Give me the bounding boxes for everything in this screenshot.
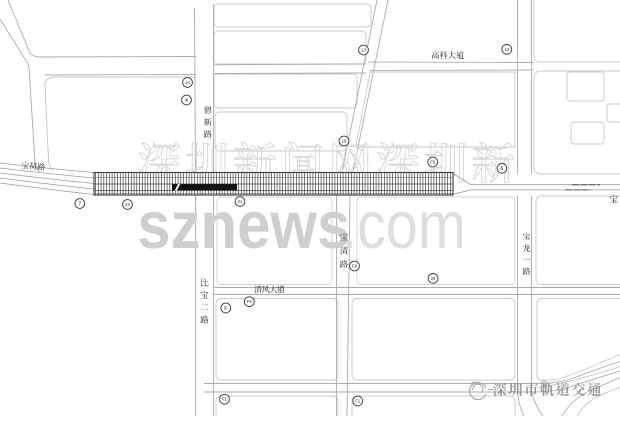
svg-text:6: 6 (501, 166, 504, 172)
svg-text:F1: F1 (355, 399, 361, 404)
svg-text:F: F (224, 306, 227, 312)
svg-text:14: 14 (185, 80, 190, 85)
svg-text:4: 4 (185, 98, 188, 104)
svg-text:19: 19 (342, 139, 347, 144)
svg-text:7: 7 (78, 201, 81, 207)
svg-text:13: 13 (361, 48, 366, 53)
svg-text:26: 26 (431, 276, 436, 281)
svg-text:13: 13 (504, 47, 509, 52)
svg-text:F4: F4 (247, 299, 253, 304)
svg-text:F6: F6 (430, 160, 436, 165)
svg-text:.com: .com (341, 188, 466, 263)
svg-text:21: 21 (238, 199, 243, 204)
svg-text:F6: F6 (352, 264, 358, 269)
svg-text:F1: F1 (222, 397, 228, 402)
svg-text:23: 23 (125, 202, 130, 207)
